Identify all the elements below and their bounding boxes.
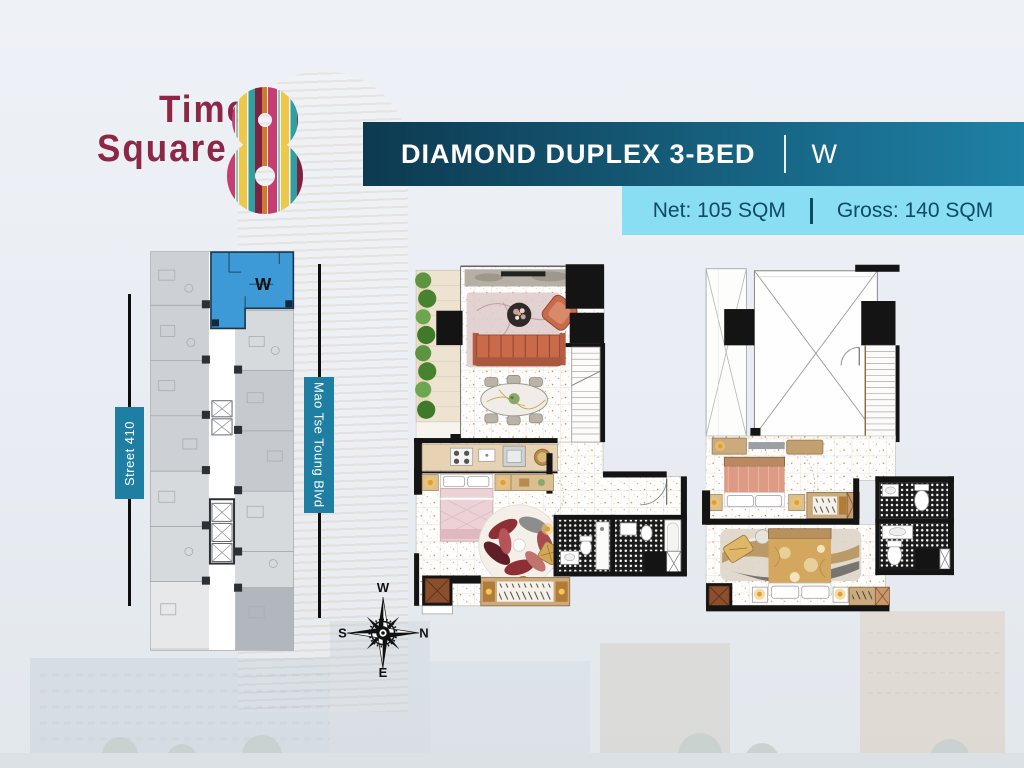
page-title: DIAMOND DUPLEX 3-BED <box>401 139 756 170</box>
upper-floor-plan: DOWN <box>698 250 962 616</box>
key-plan-unit-label: W <box>255 275 272 294</box>
compass-label-bottom: E <box>379 665 388 678</box>
logo-text-square: Square <box>97 127 228 170</box>
compass-label-top: W <box>377 582 390 595</box>
street-label-right: Mao Tse Toung Blvd <box>304 377 334 513</box>
flyer-page: Time Square DIAM <box>0 0 1024 768</box>
key-plan: W <box>148 250 296 652</box>
gross-area-value: Gross: 140 SQM <box>837 199 993 223</box>
terrace <box>415 270 460 442</box>
logo-numeral-8-icon <box>226 84 306 214</box>
wardrobe <box>481 578 570 606</box>
compass-label-left: S <box>338 626 347 641</box>
stairs <box>572 347 600 442</box>
bathroom-upper-2 <box>875 519 954 575</box>
street-label-right-text: Mao Tse Toung Blvd <box>312 382 327 508</box>
bathroom-2 <box>610 515 681 576</box>
street-label-left-text: Street 410 <box>122 421 137 486</box>
net-area-value: Net: 105 SQM <box>653 199 786 223</box>
title-banner: DIAMOND DUPLEX 3-BED W <box>363 122 1024 186</box>
area-banner: Net: 105 SQM Gross: 140 SQM <box>622 186 1024 235</box>
compass-rose-icon: W N S E <box>336 582 430 678</box>
compass-label-right: N <box>419 626 428 641</box>
void-terrace-strip <box>706 269 746 436</box>
dining-set <box>481 375 548 425</box>
street-label-left: Street 410 <box>115 407 144 499</box>
lower-floor-plan <box>406 250 694 616</box>
coffee-table <box>507 303 531 327</box>
title-divider <box>784 135 786 173</box>
area-divider <box>810 198 813 224</box>
unit-letter: W <box>812 139 838 170</box>
sofa <box>473 333 566 366</box>
